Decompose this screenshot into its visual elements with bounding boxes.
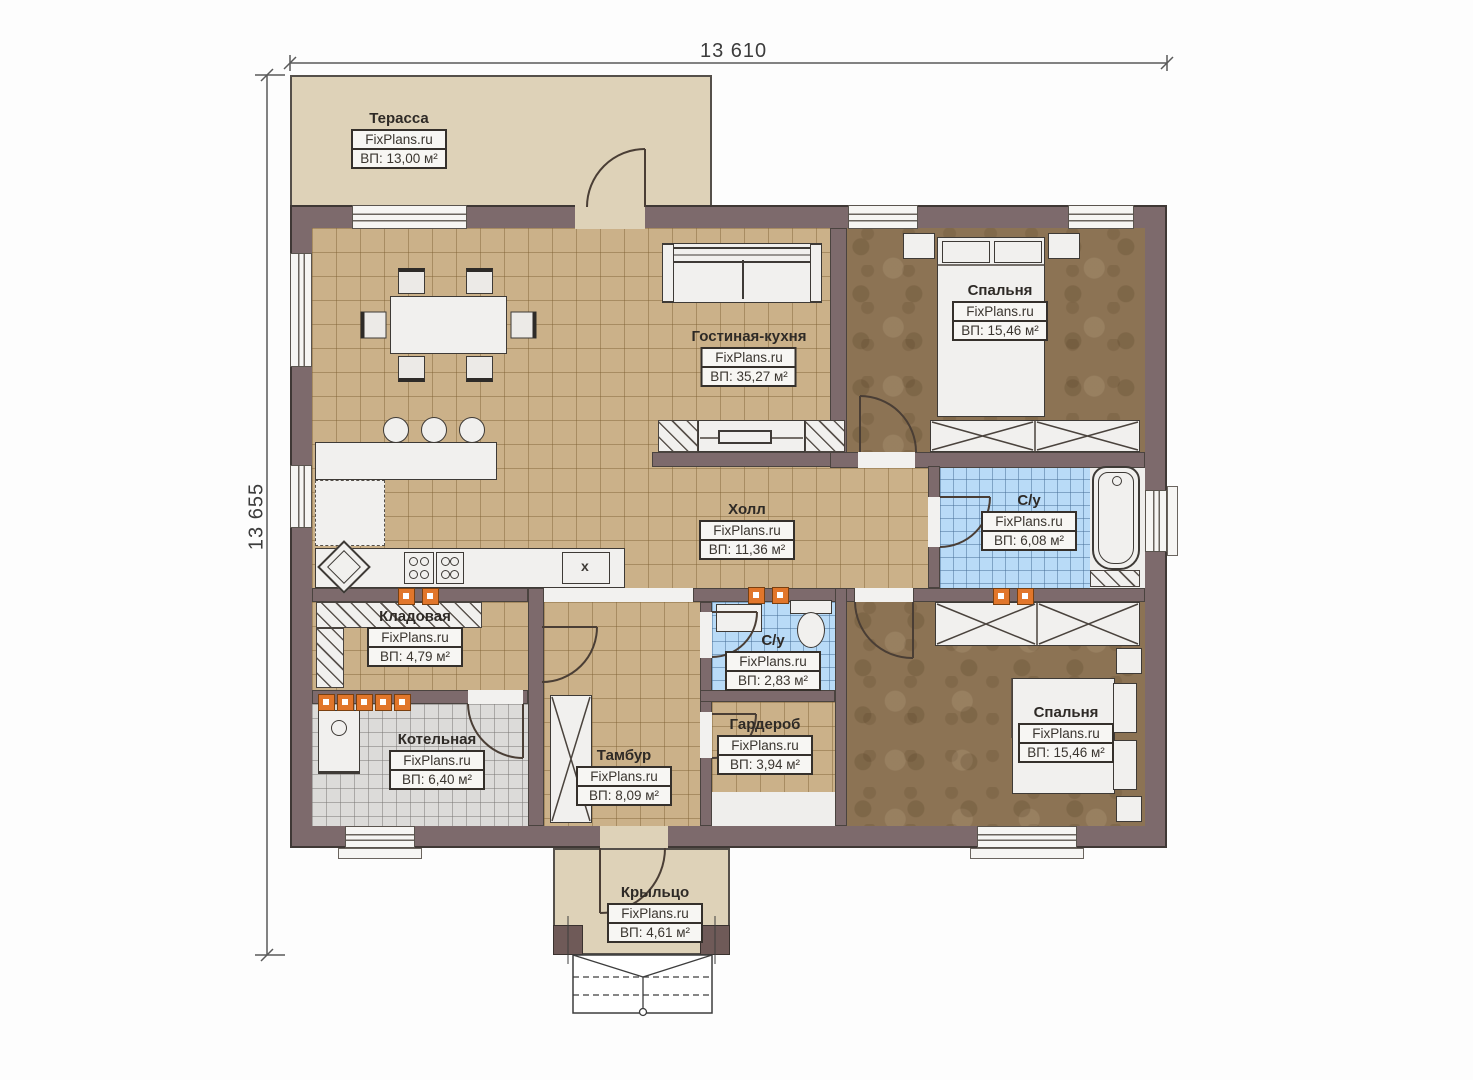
wall-wardrobe-bedroom [835,588,847,826]
vent-marker [394,694,411,711]
room-name: Холл [728,501,766,518]
brand-label: FixPlans.ru [701,522,793,541]
bath-shelf [1090,570,1140,587]
brand-label: FixPlans.ru [983,513,1075,532]
nightstand [1116,648,1142,674]
wall-tv [652,452,858,467]
wall-pantry-right [528,588,544,826]
brand-label: FixPlans.ru [703,349,795,368]
window-kitchen-left-2 [290,465,312,528]
room-name: Гардероб [730,716,801,733]
area-label: ВП: 3,94 м² [719,756,811,773]
sofa-armrest [810,244,822,302]
tv-cabinet-left [658,420,698,452]
nightstand [903,233,935,259]
dimension-height-label: 13 655 [246,482,269,552]
room-name: Гостиная-кухня [692,328,807,345]
window-boiler-bottom [345,826,415,848]
kitchen-corner-cabinet [315,480,385,546]
sofa [662,243,822,303]
door-opening-terrace [575,205,645,229]
room-label-hall: Холл FixPlans.ru ВП: 11,36 м² [699,501,795,560]
brand-label: FixPlans.ru [719,737,811,756]
room-name: С/у [1017,492,1040,509]
brand-label: FixPlans.ru [954,303,1046,322]
dishwasher-mark: x [581,558,589,574]
brand-label: FixPlans.ru [353,131,445,150]
chair [398,356,425,382]
room-name: Кладовая [379,608,451,625]
pillow [942,241,990,263]
vent-marker [398,588,415,605]
pillow [1113,683,1137,733]
passage-hall-vestibule [544,588,693,602]
room-label-wardrobe: Гардероб FixPlans.ru ВП: 3,94 м² [717,716,813,775]
room-label-terrace: Терасса FixPlans.ru ВП: 13,00 м² [351,110,447,169]
area-label: ВП: 15,46 м² [1020,744,1112,761]
area-label: ВП: 35,27 м² [703,368,795,385]
nightstand [1116,796,1142,822]
boiler-gauge [331,720,347,736]
door-opening-bedroom-top [858,452,915,468]
door-opening-bathroom-small [700,612,712,658]
washbasin [716,604,762,632]
door-opening-entrance [600,826,668,848]
room-label-boiler: Котельная FixPlans.ru ВП: 6,40 м² [389,731,485,790]
sofa-armrest [662,244,674,302]
area-label: ВП: 15,46 м² [954,322,1046,339]
room-label-vestibule: Тамбур FixPlans.ru ВП: 8,09 м² [576,747,672,806]
tv-cabinet-right [805,420,845,452]
brand-label: FixPlans.ru [727,653,819,672]
vent-marker [748,587,765,604]
door-opening-bathroom-main [928,497,940,547]
door-opening-wardrobe [700,712,712,758]
bar-stool [421,417,447,443]
vent-marker [772,587,789,604]
window-kitchen-left-1 [290,253,312,367]
room-label-bedroom-bottom: Спальня FixPlans.ru ВП: 15,46 м² [1018,704,1114,763]
chair [398,268,425,294]
vent-marker [337,694,354,711]
dimension-width-label: 13 610 [700,40,767,63]
floor-plan-canvas: 13 610 13 655 [0,0,1473,1080]
pantry-rack-left [316,628,344,688]
window-kitchen-top [352,205,467,229]
door-opening-boiler [468,690,523,704]
vent-marker [422,588,439,605]
room-label-living-kitchen: Гостиная-кухня FixPlans.ru ВП: 35,27 м² [692,328,807,387]
area-label: ВП: 11,36 м² [701,541,793,558]
window-sill-bathroom-right [1167,486,1178,556]
brand-label: FixPlans.ru [609,905,701,924]
vent-marker [375,694,392,711]
room-name: Тамбур [597,747,651,764]
floor-wardrobe-lower [712,792,835,826]
kitchen-sink-basin [327,550,361,584]
dining-table [390,296,507,354]
vent-marker [318,694,335,711]
room-name: Спальня [968,282,1033,299]
chair [466,268,493,294]
porch-pillar [700,925,730,955]
pillow [994,241,1042,263]
built-in-wardrobe-bottom [935,602,1140,646]
wall-bath-wardrobe [700,690,835,702]
chair [466,356,493,382]
window-sill-bedroom-bottom [970,848,1084,859]
window-sill-boiler [338,848,422,859]
area-label: ВП: 4,61 м² [609,924,701,941]
area-label: ВП: 6,40 м² [391,771,483,788]
area-label: ВП: 2,83 м² [727,672,819,689]
window-bedroom-bottom [977,826,1077,848]
brand-label: FixPlans.ru [369,629,461,648]
area-label: ВП: 13,00 м² [353,150,445,167]
window-bathroom-right [1145,490,1167,552]
vent-marker [993,588,1010,605]
area-label: ВП: 8,09 м² [578,787,670,804]
built-in-wardrobe-top [930,420,1140,452]
vent-marker [356,694,373,711]
window-bedroom-top-2 [1068,205,1134,229]
room-name: Крыльцо [621,884,689,901]
oven [436,552,464,584]
porch-pillar [553,925,583,955]
room-label-porch: Крыльцо FixPlans.ru ВП: 4,61 м² [607,884,703,943]
room-name: Котельная [398,731,477,748]
bar-stool [459,417,485,443]
vent-marker [1017,588,1034,605]
door-opening-bedroom-bottom [855,588,913,602]
nightstand [1048,233,1080,259]
window-bedroom-top-1 [848,205,918,229]
room-label-bathroom-main: С/у FixPlans.ru ВП: 6,08 м² [981,492,1077,551]
boiler-shelf [318,772,360,774]
brand-label: FixPlans.ru [1020,725,1112,744]
sofa-cushion-divider [742,260,744,299]
chair [361,312,387,339]
room-label-bathroom-small: С/у FixPlans.ru ВП: 2,83 м² [725,632,821,691]
stove [404,552,434,584]
room-name: С/у [761,632,784,649]
bathtub-faucet [1112,476,1122,486]
room-name: Терасса [369,110,428,127]
chair [511,312,537,339]
room-label-bedroom-top: Спальня FixPlans.ru ВП: 15,46 м² [952,282,1048,341]
brand-label: FixPlans.ru [391,752,483,771]
room-name: Спальня [1034,704,1099,721]
tv [718,430,772,444]
area-label: ВП: 4,79 м² [369,648,461,665]
room-label-pantry: Кладовая FixPlans.ru ВП: 4,79 м² [367,608,463,667]
pillow [1113,740,1137,790]
area-label: ВП: 6,08 м² [983,532,1075,549]
bar-stool [383,417,409,443]
brand-label: FixPlans.ru [578,768,670,787]
kitchen-island-counter [315,442,497,480]
